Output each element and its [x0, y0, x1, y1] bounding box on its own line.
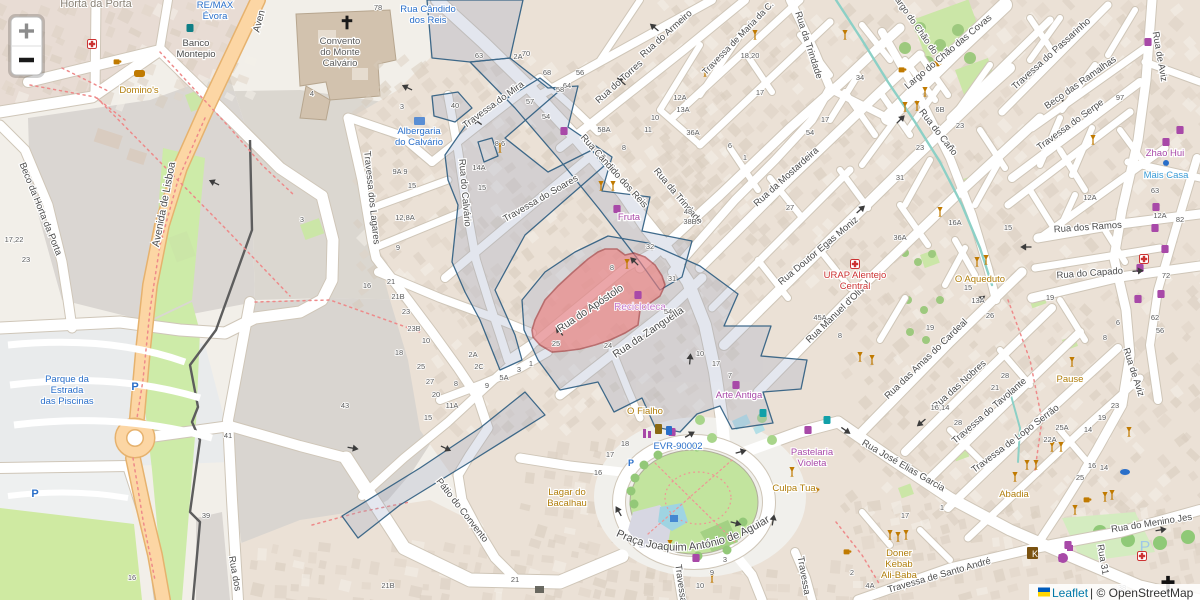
svg-text:Rua Cândido: Rua Cândido [400, 4, 455, 15]
svg-text:57: 57 [526, 97, 534, 106]
svg-text:16: 16 [128, 573, 136, 582]
svg-text:62: 62 [1151, 313, 1159, 322]
svg-text:10: 10 [422, 336, 430, 345]
svg-text:Ali-Baba: Ali-Baba [881, 570, 918, 581]
svg-text:14A: 14A [472, 163, 485, 172]
svg-text:1: 1 [743, 153, 747, 162]
svg-text:45A: 45A [813, 313, 826, 322]
svg-text:18: 18 [621, 439, 629, 448]
svg-text:12A: 12A [1083, 193, 1096, 202]
svg-text:Arte Antiga: Arte Antiga [716, 390, 763, 401]
svg-text:8: 8 [1103, 333, 1107, 342]
svg-text:40: 40 [451, 101, 459, 110]
svg-text:Parque da: Parque da [45, 374, 90, 385]
svg-text:15: 15 [424, 413, 432, 422]
svg-text:9: 9 [710, 568, 714, 577]
svg-text:Fruta: Fruta [618, 212, 641, 223]
svg-text:8: 8 [454, 379, 458, 388]
svg-text:Leaflet: Leaflet [1052, 586, 1089, 600]
svg-text:25A: 25A [1055, 423, 1068, 432]
svg-text:78: 78 [374, 3, 382, 12]
svg-text:3: 3 [300, 215, 304, 224]
svg-text:21: 21 [991, 383, 999, 392]
svg-text:16A: 16A [948, 218, 961, 227]
svg-text:41: 41 [224, 431, 232, 440]
svg-text:36A: 36A [893, 233, 906, 242]
svg-text:27: 27 [786, 203, 794, 212]
svg-text:54: 54 [806, 128, 814, 137]
svg-text:O Fialho: O Fialho [627, 406, 663, 417]
svg-text:16: 16 [363, 281, 371, 290]
svg-text:Pastelaria: Pastelaria [791, 447, 834, 458]
svg-text:Abadia: Abadia [999, 489, 1029, 500]
svg-text:13A: 13A [971, 296, 984, 305]
svg-text:Horta da Porta: Horta da Porta [60, 0, 132, 10]
svg-text:Domino's: Domino's [119, 85, 159, 96]
svg-text:13A: 13A [676, 105, 689, 114]
svg-text:14: 14 [1100, 463, 1108, 472]
svg-text:72: 72 [1162, 271, 1170, 280]
svg-text:24: 24 [604, 341, 612, 350]
svg-text:8: 8 [838, 331, 842, 340]
svg-text:Albergaria: Albergaria [397, 126, 441, 137]
svg-text:14: 14 [1084, 425, 1092, 434]
svg-text:3: 3 [723, 555, 727, 564]
svg-text:56: 56 [1156, 326, 1164, 335]
svg-text:1: 1 [529, 359, 533, 368]
svg-text:17: 17 [712, 359, 720, 368]
svg-text:19: 19 [1046, 293, 1054, 302]
svg-text:18: 18 [395, 348, 403, 357]
svg-text:8 6: 8 6 [495, 139, 505, 148]
svg-text:23: 23 [22, 255, 30, 264]
svg-text:68: 68 [543, 68, 551, 77]
svg-text:28: 28 [954, 418, 962, 427]
svg-text:16: 16 [1088, 461, 1096, 470]
svg-text:11A: 11A [446, 401, 459, 410]
svg-text:97: 97 [1116, 93, 1124, 102]
svg-text:48: 48 [684, 207, 692, 216]
svg-text:P: P [628, 458, 634, 468]
svg-text:56: 56 [576, 68, 584, 77]
svg-text:38B: 38B [683, 217, 696, 226]
svg-text:das Piscinas: das Piscinas [40, 396, 94, 407]
svg-text:36A: 36A [686, 128, 699, 137]
svg-text:21B: 21B [391, 292, 404, 301]
svg-text:Zhao Hui: Zhao Hui [1146, 148, 1185, 159]
svg-text:25: 25 [552, 339, 560, 348]
svg-text:Estrada: Estrada [51, 385, 84, 396]
svg-text:O Aqueduto: O Aqueduto [955, 274, 1005, 285]
svg-text:10: 10 [696, 581, 704, 590]
svg-text:1: 1 [940, 503, 944, 512]
svg-text:4A: 4A [865, 581, 874, 590]
svg-text:23: 23 [402, 307, 410, 316]
svg-text:15: 15 [964, 283, 972, 292]
svg-text:28: 28 [1001, 371, 1009, 380]
svg-text:17: 17 [821, 115, 829, 124]
svg-text:3: 3 [517, 365, 521, 374]
svg-text:Montepio: Montepio [176, 49, 215, 60]
svg-text:Violeta: Violeta [798, 458, 828, 469]
svg-text:11: 11 [644, 125, 652, 134]
svg-text:21B: 21B [381, 581, 394, 590]
svg-text:10: 10 [651, 113, 659, 122]
svg-text:Bacalhau: Bacalhau [547, 498, 587, 509]
svg-text:18,20: 18,20 [741, 51, 760, 60]
svg-text:19: 19 [926, 323, 934, 332]
svg-text:27: 27 [426, 377, 434, 386]
svg-text:20: 20 [432, 390, 440, 399]
svg-text:25: 25 [1076, 473, 1084, 482]
svg-text:26: 26 [986, 311, 994, 320]
svg-text:23: 23 [916, 143, 924, 152]
svg-text:Évora: Évora [203, 11, 229, 22]
svg-text:do Monte: do Monte [320, 47, 360, 58]
svg-text:| © OpenStreetMap: | © OpenStreetMap [1090, 586, 1194, 600]
svg-text:2C: 2C [474, 362, 484, 371]
svg-text:54: 54 [664, 307, 672, 316]
svg-text:Recicloteca: Recicloteca [614, 302, 666, 313]
svg-text:22A: 22A [1043, 435, 1056, 444]
svg-text:23: 23 [956, 121, 964, 130]
svg-text:17: 17 [756, 88, 764, 97]
svg-text:dos Reis: dos Reis [410, 15, 447, 26]
svg-text:15: 15 [1004, 223, 1012, 232]
svg-text:16,14: 16,14 [931, 403, 950, 412]
svg-text:Banco: Banco [183, 38, 210, 49]
svg-text:P: P [31, 488, 38, 500]
svg-text:15: 15 [478, 183, 486, 192]
svg-text:16: 16 [594, 468, 602, 477]
svg-text:Pause: Pause [1057, 374, 1084, 385]
svg-text:do Calvário: do Calvário [395, 137, 443, 148]
svg-text:10: 10 [696, 349, 704, 358]
svg-text:70: 70 [522, 49, 530, 58]
svg-text:17,22: 17,22 [5, 235, 24, 244]
svg-text:6: 6 [728, 141, 732, 150]
svg-text:58A: 58A [597, 125, 610, 134]
svg-text:12,8A: 12,8A [395, 213, 415, 222]
svg-text:9A 9: 9A 9 [392, 167, 407, 176]
svg-text:Doner: Doner [886, 548, 912, 559]
svg-text:Central: Central [840, 281, 871, 292]
svg-text:3: 3 [400, 102, 404, 111]
svg-text:54: 54 [542, 112, 550, 121]
svg-text:21: 21 [387, 277, 395, 286]
svg-text:17: 17 [606, 450, 614, 459]
svg-text:8: 8 [622, 143, 626, 152]
svg-text:9: 9 [396, 243, 400, 252]
svg-text:21: 21 [511, 575, 519, 584]
svg-text:6: 6 [1116, 318, 1120, 327]
svg-text:12A: 12A [1153, 211, 1166, 220]
svg-text:39: 39 [202, 511, 210, 520]
svg-text:32: 32 [646, 242, 654, 251]
svg-text:31: 31 [668, 274, 676, 283]
svg-text:7: 7 [728, 371, 732, 380]
svg-text:63: 63 [475, 51, 483, 60]
svg-text:Lagar do: Lagar do [548, 487, 586, 498]
svg-text:8: 8 [610, 263, 614, 272]
svg-text:82: 82 [1176, 215, 1184, 224]
svg-text:Mais Casa: Mais Casa [1144, 170, 1190, 181]
svg-text:EVR-90002: EVR-90002 [653, 441, 702, 452]
svg-text:63: 63 [1151, 186, 1159, 195]
svg-text:58: 58 [556, 85, 564, 94]
svg-text:15: 15 [408, 181, 416, 190]
svg-text:34: 34 [856, 73, 864, 82]
svg-text:17: 17 [901, 511, 909, 520]
svg-text:23B: 23B [407, 324, 420, 333]
svg-text:43: 43 [341, 401, 349, 410]
svg-text:Culpa Tua: Culpa Tua [772, 483, 816, 494]
svg-text:12A: 12A [673, 93, 686, 102]
svg-text:9: 9 [485, 381, 489, 390]
svg-text:2A: 2A [468, 350, 477, 359]
svg-text:6B: 6B [935, 105, 944, 114]
svg-text:K: K [1032, 549, 1038, 559]
svg-text:URAP Alentejo: URAP Alentejo [824, 270, 887, 281]
svg-text:P: P [131, 381, 138, 393]
svg-text:Kebab: Kebab [885, 559, 912, 570]
svg-text:25: 25 [417, 362, 425, 371]
svg-text:31: 31 [896, 173, 904, 182]
svg-text:Calvário: Calvário [323, 58, 358, 69]
svg-text:2: 2 [850, 568, 854, 577]
svg-text:5A: 5A [499, 373, 508, 382]
svg-text:RE/MAX: RE/MAX [197, 0, 234, 11]
svg-text:23: 23 [1111, 401, 1119, 410]
svg-text:Convento: Convento [320, 36, 361, 47]
svg-text:4: 4 [310, 89, 314, 98]
svg-text:19: 19 [1098, 413, 1106, 422]
